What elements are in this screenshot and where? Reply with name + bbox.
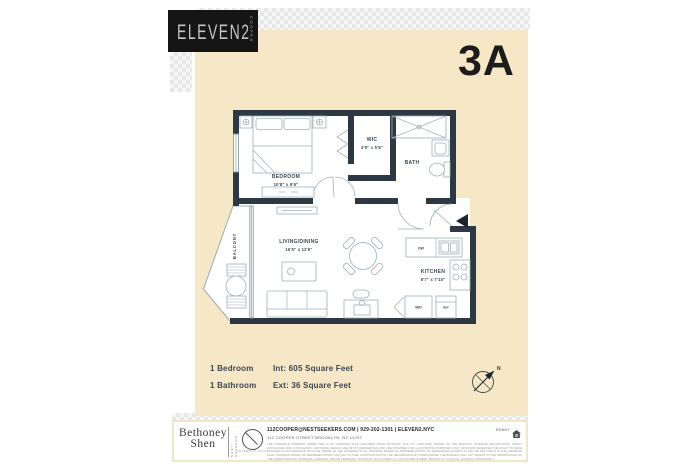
- wic-label: WIC: [367, 137, 378, 143]
- toilet: [430, 163, 445, 176]
- wic-dims: 3'9" x 5'8": [361, 145, 383, 150]
- kitchen-dims: 8'7" x 7'10": [421, 277, 446, 282]
- kitchen-label: KITCHEN: [421, 269, 445, 275]
- compass-north-label: N: [497, 366, 501, 372]
- bath-label: BATH: [405, 160, 420, 166]
- summary-interior-sqft: Int: 605 Square Feet: [273, 364, 353, 373]
- equal-housing-icon: [512, 425, 521, 443]
- stove: [450, 260, 470, 290]
- living-dims: 16'5" x 12'6": [285, 247, 312, 252]
- footer-divider: [228, 427, 229, 457]
- summary-exterior-sqft: Ext: 36 Square Feet: [273, 381, 351, 390]
- refrigerator-label: REF: [443, 306, 449, 310]
- desk-chair: [353, 290, 369, 298]
- footer-contact-line: 112COOPER@NESTSEEKERS.COM | 929-202-1301…: [267, 427, 434, 433]
- footer-address-line: 112 COOPER STREET BROOKLYN, NY 11207: [267, 435, 362, 440]
- flyer-page: ELEVEN2 COOPER 3A .rl{font:bold 5px "Lib…: [0, 0, 700, 466]
- agency-subtext: INTERNATIONAL: [237, 450, 267, 453]
- balcony-label: BALCONY: [232, 233, 237, 259]
- left-gray-block: [170, 52, 192, 92]
- brand-logo-subtext: COOPER: [249, 16, 254, 43]
- rebny-label: REBNY: [496, 428, 510, 432]
- broker-wordmark: Bethoney Shen: [178, 428, 228, 450]
- balcony-furniture: [226, 264, 246, 308]
- brand-logo-text: ELEVEN2: [177, 19, 251, 44]
- balcony-table: [226, 276, 246, 296]
- dresser: [262, 187, 314, 197]
- floorplan-drawing: .rl{font:bold 5px "Liberation Sans",sans…: [195, 30, 528, 418]
- bedroom-label: BEDROOM: [272, 174, 300, 180]
- bedroom-dims: 10'8" x 9'6": [274, 182, 299, 187]
- washer-dryer-label: W/D: [415, 306, 422, 310]
- dining-table: [350, 243, 377, 270]
- brand-logo: ELEVEN2 COOPER: [168, 10, 258, 52]
- bed: [253, 116, 312, 173]
- compass-icon: N: [473, 366, 502, 393]
- dishwasher-label: DW: [418, 247, 424, 251]
- living-label: LIVING/DINING: [279, 239, 318, 245]
- footer-disclaimer: THE COMPLETE OFFERING TERMS ARE IN AN OF…: [267, 443, 522, 461]
- sofa: [267, 291, 327, 317]
- summary-bedrooms: 1 Bedroom: [210, 364, 254, 373]
- broker-name-line2: Shen: [178, 439, 228, 450]
- summary-bathrooms: 1 Bathroom: [210, 381, 256, 390]
